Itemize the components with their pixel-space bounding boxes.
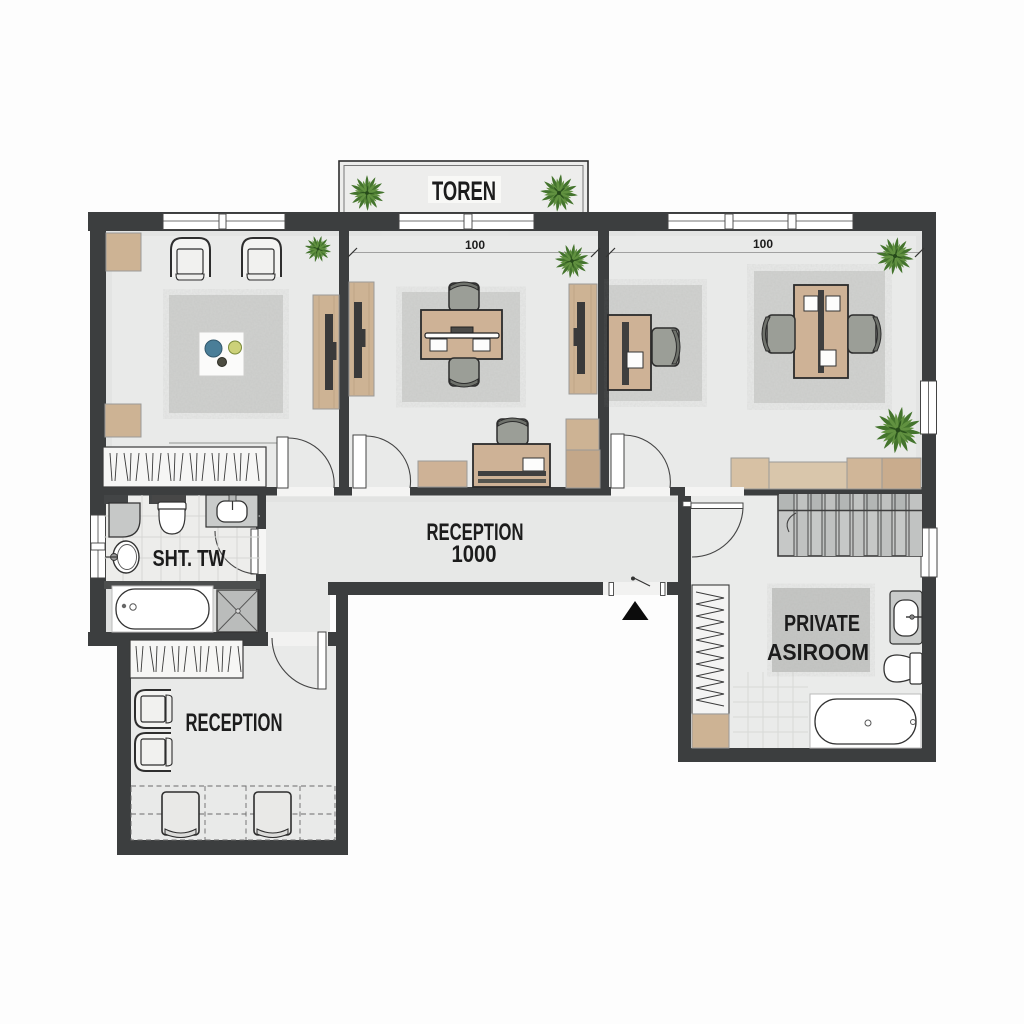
svg-text:100: 100 (465, 238, 485, 252)
svg-text:ASIROOM: ASIROOM (767, 639, 869, 665)
svg-text:PRIVATE: PRIVATE (784, 610, 860, 636)
svg-text:RECEPTION: RECEPTION (186, 709, 283, 737)
svg-text:100: 100 (753, 237, 773, 251)
svg-text:SHT. TW: SHT. TW (153, 545, 226, 571)
svg-text:TOREN: TOREN (432, 176, 496, 206)
svg-text:1000: 1000 (452, 541, 497, 568)
